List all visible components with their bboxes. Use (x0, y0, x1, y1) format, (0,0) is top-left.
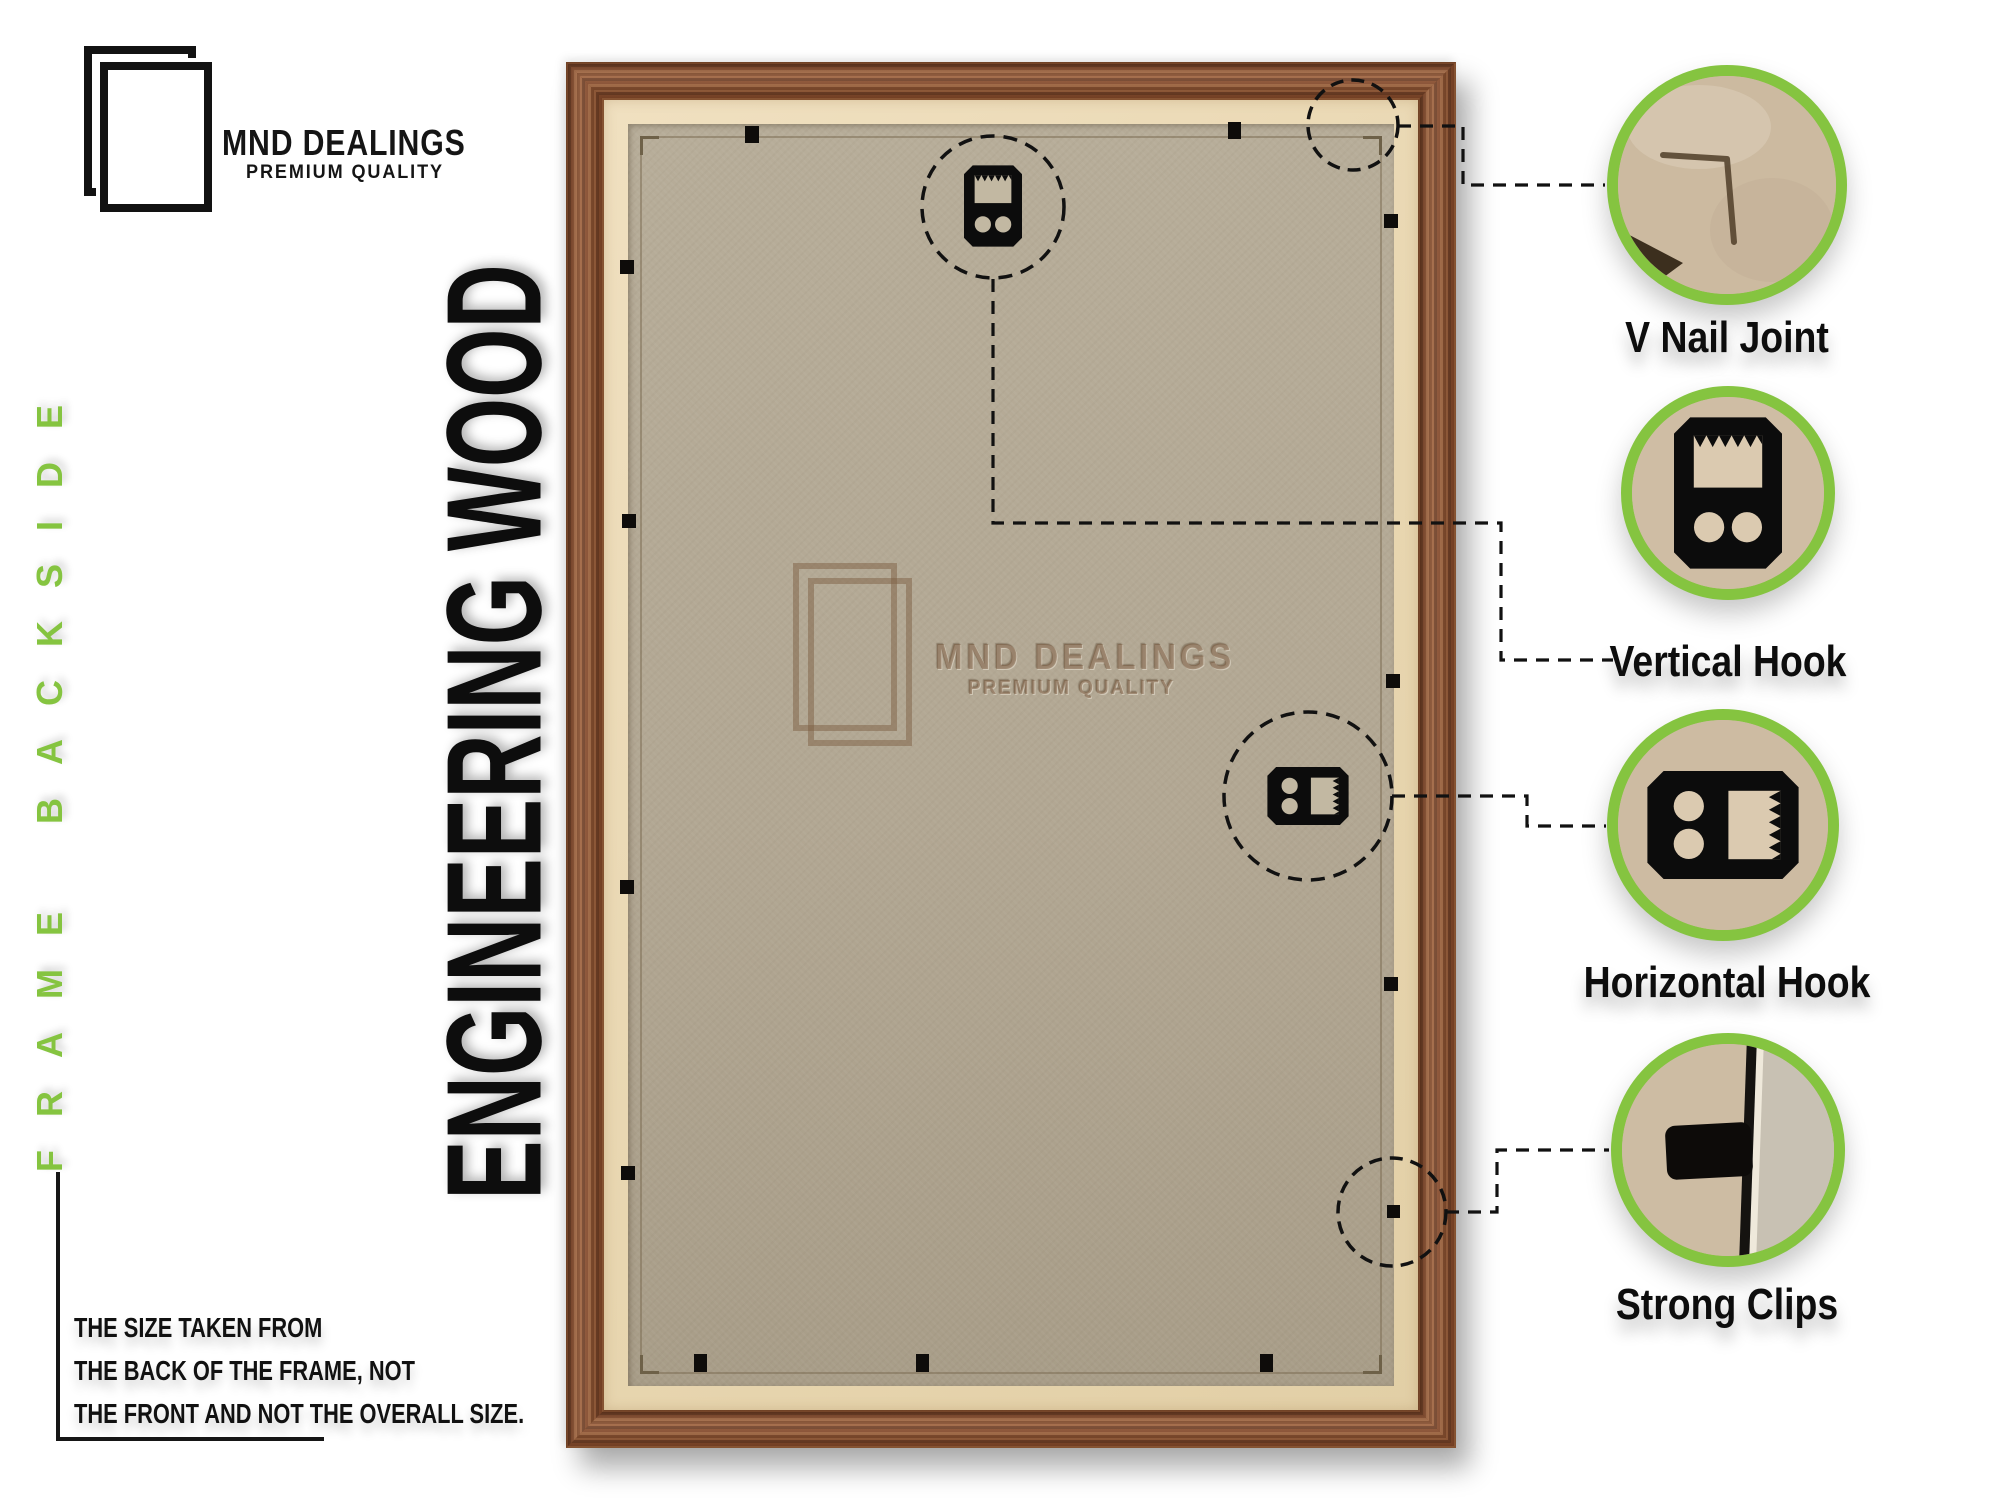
connector-strong-clips (1446, 1150, 1609, 1212)
strong-clips-photo (1622, 1044, 1834, 1256)
callout-label-vertical-hook: Vertical Hook (1610, 637, 1847, 687)
frame-wood-top (566, 62, 1456, 100)
callout-circle-horizontal-hook (1607, 709, 1839, 941)
retainer-clip (1386, 674, 1400, 688)
watermark-frame-icon (808, 578, 912, 746)
frame-back-photo (566, 62, 1456, 1448)
callout-circle-vertical-hook (1621, 386, 1835, 600)
retainer-clip (620, 880, 634, 894)
size-note: THE SIZE TAKEN FROM THE BACK OF THE FRAM… (74, 1306, 651, 1435)
frame-wood-left (566, 62, 604, 1448)
frame-wood-right (1418, 62, 1456, 1448)
corner-mark-icon (640, 136, 659, 155)
mdf-backboard (628, 124, 1394, 1386)
headline: ENGINEERING WOOD (417, 264, 572, 1200)
frame-mat-border (604, 100, 1418, 1410)
watermark-name: MND DEALINGS (935, 636, 1235, 678)
note-pointer-line (56, 1172, 60, 1440)
logo-frame-icon (100, 62, 212, 212)
watermark-tagline: PREMIUM QUALITY (968, 677, 1175, 700)
corner-mark-icon (1363, 1355, 1382, 1374)
brand-name: MND DEALINGS (222, 122, 466, 164)
frame-wood-bottom (566, 1410, 1456, 1448)
retainer-clip (1228, 122, 1241, 139)
vertical-hook-photo (1632, 397, 1824, 589)
retainer-clip (916, 1354, 929, 1372)
callout-circle-v-nail-joint (1607, 65, 1847, 305)
callout-circle-strong-clips (1611, 1033, 1845, 1267)
frame-backside-infographic: MND DEALINGS PREMIUM QUALITY FRAME BACKS… (0, 0, 2000, 1500)
size-note-line-3: THE FRONT AND NOT THE OVERALL SIZE. (74, 1392, 524, 1435)
retainer-clip (1384, 977, 1398, 991)
horizontal-hook-photo (1618, 720, 1828, 930)
corner-mark-icon (1363, 136, 1382, 155)
side-label: FRAME BACKSIDE (29, 372, 71, 1172)
retainer-clip (1384, 214, 1398, 228)
callout-label-strong-clips: Strong Clips (1616, 1280, 1838, 1330)
retainer-clip (1260, 1354, 1273, 1372)
retainer-clip (745, 126, 759, 143)
v-nail-joint-photo (1618, 76, 1836, 294)
size-note-line-2: THE BACK OF THE FRAME, NOT (74, 1349, 524, 1392)
retainer-clip (622, 514, 636, 528)
retainer-clip (620, 260, 634, 274)
callout-label-v-nail-joint: V Nail Joint (1625, 313, 1829, 363)
size-note-line-1: THE SIZE TAKEN FROM (74, 1306, 524, 1349)
backboard-crease-line (640, 136, 1382, 1374)
retainer-clip-strong (1387, 1205, 1400, 1218)
retainer-clip (621, 1166, 635, 1180)
retainer-clip (694, 1354, 707, 1372)
brand-tagline: PREMIUM QUALITY (246, 162, 444, 184)
callout-label-horizontal-hook: Horizontal Hook (1584, 958, 1871, 1008)
note-underline (56, 1437, 324, 1441)
